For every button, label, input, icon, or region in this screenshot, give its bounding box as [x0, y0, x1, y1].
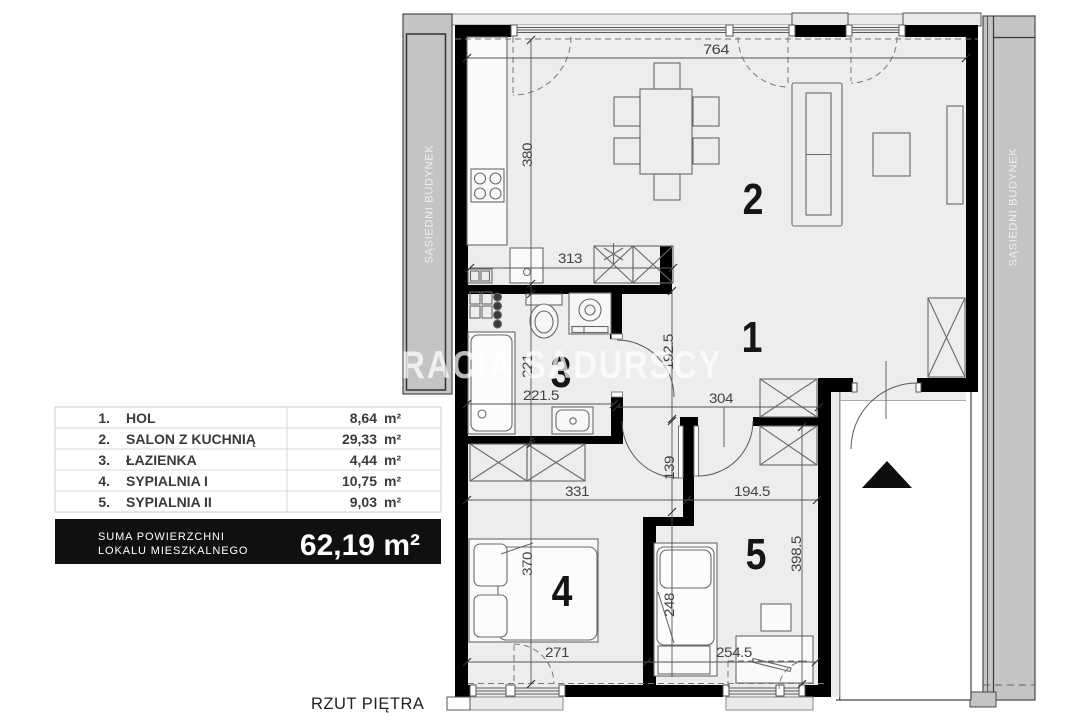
svg-text:370: 370: [520, 552, 535, 576]
svg-text:254.5: 254.5: [716, 645, 752, 660]
svg-text:194.5: 194.5: [734, 484, 770, 499]
svg-text:62,19 m²: 62,19 m²: [300, 529, 420, 562]
svg-text:5.: 5.: [98, 494, 110, 510]
svg-text:9,03: 9,03: [350, 494, 377, 510]
svg-text:2: 2: [743, 174, 764, 224]
svg-text:380: 380: [520, 143, 535, 167]
svg-text:764: 764: [703, 42, 730, 57]
svg-text:BRACIA SADURSCY: BRACIA SADURSCY: [376, 344, 723, 387]
svg-text:10,75: 10,75: [342, 473, 377, 489]
svg-text:8,64: 8,64: [350, 410, 377, 426]
svg-text:SUMA POWIERZCHNI: SUMA POWIERZCHNI: [98, 531, 225, 543]
svg-text:ŁAZIENKA: ŁAZIENKA: [126, 452, 197, 468]
svg-text:271: 271: [545, 645, 569, 660]
svg-text:m²: m²: [384, 473, 401, 489]
svg-text:SALON Z KUCHNIĄ: SALON Z KUCHNIĄ: [126, 431, 256, 447]
svg-text:m²: m²: [384, 410, 401, 426]
svg-text:313: 313: [558, 251, 582, 266]
svg-text:4: 4: [552, 566, 573, 616]
svg-text:5: 5: [746, 529, 767, 579]
svg-text:m²: m²: [384, 452, 401, 468]
svg-text:4.: 4.: [98, 473, 110, 489]
svg-text:m²: m²: [384, 494, 401, 510]
svg-text:1: 1: [742, 312, 763, 362]
svg-text:248: 248: [662, 593, 677, 617]
svg-text:SYPIALNIA I: SYPIALNIA I: [126, 473, 208, 489]
svg-text:4,44: 4,44: [350, 452, 377, 468]
svg-text:SĄSIEDNI BUDYNEK: SĄSIEDNI BUDYNEK: [424, 145, 436, 264]
svg-text:HOL: HOL: [126, 410, 156, 426]
svg-text:m²: m²: [384, 431, 401, 447]
svg-text:RZUT PIĘTRA: RZUT PIĘTRA: [311, 695, 424, 713]
svg-text:304: 304: [709, 391, 734, 406]
svg-text:3.: 3.: [98, 452, 110, 468]
svg-text:29,33: 29,33: [342, 431, 377, 447]
svg-text:1.: 1.: [98, 410, 110, 426]
svg-text:2.: 2.: [98, 431, 110, 447]
svg-text:LOKALU MIESZKALNEGO: LOKALU MIESZKALNEGO: [98, 545, 248, 557]
svg-text:331: 331: [565, 484, 589, 499]
svg-text:SYPIALNIA II: SYPIALNIA II: [126, 494, 212, 510]
svg-text:398.5: 398.5: [789, 536, 804, 572]
svg-text:139: 139: [662, 456, 677, 480]
svg-text:SĄSIEDNI BUDYNEK: SĄSIEDNI BUDYNEK: [1008, 148, 1020, 267]
